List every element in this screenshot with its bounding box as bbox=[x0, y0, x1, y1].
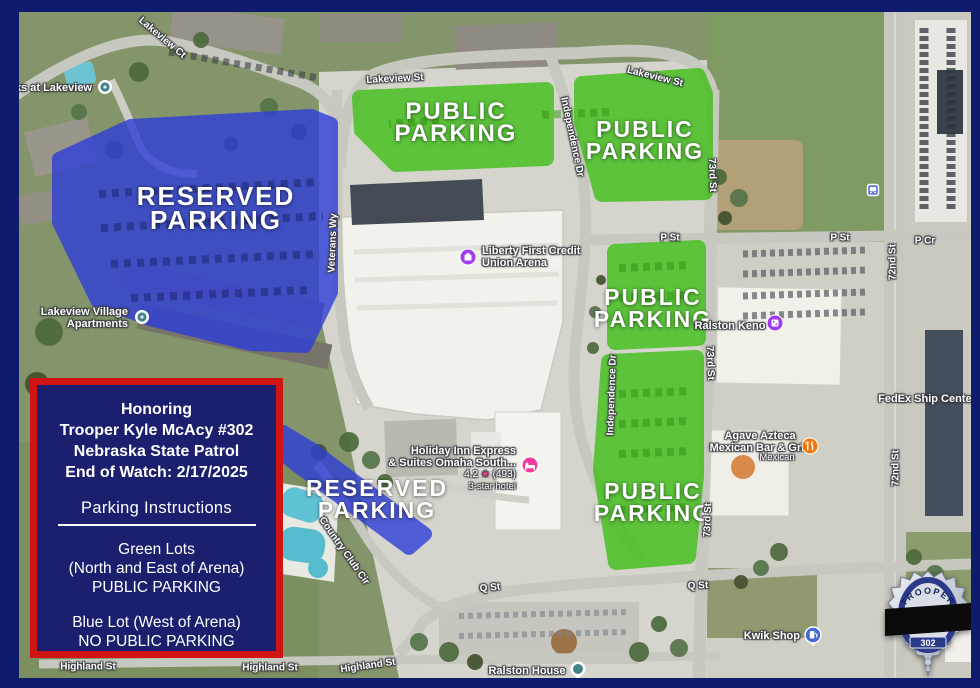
street-label-q-st-east: Q St bbox=[687, 580, 708, 592]
street-label-p-st-west: P St bbox=[660, 233, 679, 244]
poi-label-oaks-at-lakeview: Oaks at Lakeview bbox=[19, 82, 92, 94]
poi-label-ralston-house: Ralston House bbox=[488, 665, 565, 677]
trooper-badge: TROOPER 302 bbox=[885, 568, 971, 678]
poi-label-holiday-inn: Holiday Inn Express & Suites Omaha South… bbox=[388, 445, 516, 493]
poi-label-arena: Liberty First Credit Union Arena bbox=[482, 245, 580, 269]
poi-label-kwik-shop: Kwik Shop bbox=[744, 630, 800, 642]
poi-label-ralston-keno: Ralston Keno bbox=[695, 320, 766, 332]
memorial-trooper-name: Trooper Kyle McAcy #302 bbox=[60, 420, 254, 441]
memorial-end-of-watch: End of Watch: 2/17/2025 bbox=[60, 462, 254, 483]
street-label-highland-st-west: Highland St bbox=[60, 662, 116, 673]
memorial-box: Honoring Trooper Kyle McAcy #302 Nebrask… bbox=[30, 378, 283, 658]
zone-label-public-parking-southeast: PUBLIC PARKING bbox=[594, 480, 712, 524]
blue-lot-instructions: Blue Lot (West of Arena) NO PUBLIC PARKI… bbox=[72, 613, 241, 651]
poi-category-agave: Mexican bbox=[759, 452, 794, 464]
zone-label-public-parking-northeast: PUBLIC PARKING bbox=[586, 118, 704, 162]
arena-poi-icon bbox=[459, 248, 477, 266]
zone-label-public-parking-north: PUBLIC PARKING bbox=[395, 101, 518, 145]
poi-label-fedex: FedEx Ship Center bbox=[878, 393, 971, 405]
bus-stop-icon bbox=[866, 183, 880, 197]
badge-number: 302 bbox=[920, 638, 935, 648]
poi-label-agave-azteca: Agave Azteca Mexican Bar & Grill bbox=[710, 430, 811, 454]
satellite-map: RESERVED PARKING RESERVED PARKING PUBLIC… bbox=[19, 12, 971, 678]
memorial-honoring: Honoring bbox=[60, 399, 254, 420]
memorial-agency: Nebraska State Patrol bbox=[60, 441, 254, 462]
map-pin-icon bbox=[569, 661, 587, 678]
street-label-veterans-wy: Veterans Wy bbox=[326, 213, 339, 273]
parking-instructions-title: Parking Instructions bbox=[81, 499, 232, 518]
rating-star-icon: ★ bbox=[481, 469, 490, 480]
hotel-poi-icon bbox=[521, 456, 539, 474]
arena-building bbox=[341, 179, 563, 420]
gas-station-poi-icon bbox=[804, 626, 822, 650]
poi-label-lakeview-village: Lakeview Village Apartments bbox=[41, 306, 128, 330]
zone-label-reserved-parking-west: RESERVED PARKING bbox=[137, 184, 296, 232]
divider-rule bbox=[58, 524, 256, 526]
green-lot-instructions: Green Lots (North and East of Arena) PUB… bbox=[69, 540, 245, 597]
street-label-p-cir: P Cr bbox=[915, 236, 935, 247]
memorial-header: Honoring Trooper Kyle McAcy #302 Nebrask… bbox=[60, 399, 254, 483]
street-label-73rd-st-south: 73rd St bbox=[702, 503, 714, 537]
street-label-72nd-st-south: 72nd St bbox=[891, 450, 902, 486]
restaurant-poi-icon bbox=[801, 437, 819, 455]
street-label-highland-st-mid: Highland St bbox=[242, 663, 298, 674]
map-pin-icon bbox=[97, 79, 113, 95]
keno-poi-icon bbox=[766, 314, 784, 332]
street-label-q-st-west: Q St bbox=[479, 581, 501, 594]
street-label-p-st-east: P St bbox=[830, 233, 849, 244]
street-label-73rd-st-mid: 73rd St bbox=[704, 346, 716, 380]
street-label-72nd-st-north: 72nd St bbox=[888, 244, 899, 280]
street-label-73rd-st-north: 73rd St bbox=[706, 158, 718, 192]
memorial-parking-flyer: RESERVED PARKING RESERVED PARKING PUBLIC… bbox=[0, 0, 980, 688]
map-pin-icon bbox=[134, 309, 150, 325]
